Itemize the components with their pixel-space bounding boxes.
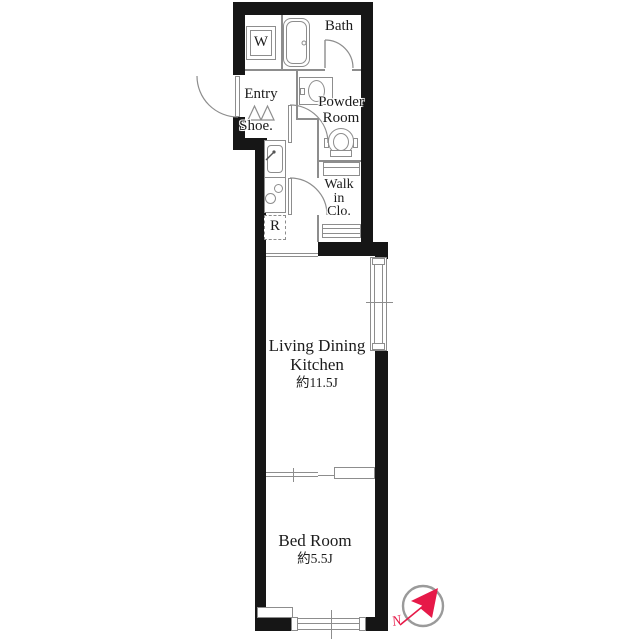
wic-shelf-bottom	[322, 224, 361, 238]
wic-label-line3: Clo.	[309, 205, 369, 219]
wall-wic-left-b	[317, 215, 319, 242]
compass-needle-upper	[411, 588, 438, 606]
refrigerator-label: R	[264, 219, 286, 235]
wall-powder-left	[296, 70, 298, 120]
toilet-bowl-inner	[333, 133, 349, 151]
toilet-tab-left	[324, 138, 329, 148]
ldk-window-cap-top	[372, 258, 385, 265]
entry-label: Entry	[231, 87, 291, 103]
wall-under-bath	[245, 69, 325, 71]
bedroom-size-label: 約5.5J	[245, 550, 385, 567]
powder-room-label-line1: Powder	[311, 94, 371, 110]
bedroom-window-pane	[294, 623, 363, 624]
walk-in-closet-label: Walk in Clo.	[309, 178, 369, 219]
partition-tick	[293, 468, 294, 482]
wic-label-line2: in	[309, 192, 369, 206]
powder-room-label: Powder Room	[311, 94, 371, 126]
kitchen-ldk-boundary-line	[266, 253, 318, 257]
bedroom-label-name: Bed Room	[245, 531, 385, 550]
toilet-tab-right	[353, 138, 358, 148]
wall-upper-left-a	[233, 15, 245, 75]
bedroom-window	[293, 618, 364, 630]
bath-door-arc	[325, 40, 353, 68]
washing-machine-label: W	[246, 35, 276, 51]
wall-under-bath-right	[352, 69, 361, 71]
powder-sink-tap	[300, 88, 305, 95]
ldk-label-line1: Living Dining	[247, 336, 387, 355]
bathtub-inner	[286, 21, 307, 64]
compass-needle-lower	[420, 588, 438, 618]
wic-door-leaf	[288, 178, 292, 215]
partition-connector	[318, 475, 335, 476]
powder-room-label-line2: Room	[311, 110, 371, 126]
compass-north-label: N	[387, 613, 406, 631]
shoe-label: Shoe.	[226, 119, 286, 135]
partition-track	[266, 472, 318, 477]
floor-plan: W R	[0, 0, 640, 639]
bedroom-ledge	[257, 607, 293, 618]
stove-burner-1	[265, 193, 276, 204]
wall-top	[233, 2, 373, 15]
bedroom-window-tick	[331, 610, 332, 639]
partition-panel	[334, 467, 375, 479]
wic-shelf-bottom-rod2	[323, 233, 360, 234]
wall-bottom-right	[364, 617, 388, 631]
ldk-size-label: 約11.5J	[247, 374, 387, 391]
wic-label-line1: Walk	[309, 178, 369, 192]
bath-label: Bath	[309, 19, 369, 35]
bedroom-label: Bed Room 約5.5J	[245, 531, 385, 567]
ldk-window-mullion	[366, 302, 393, 303]
wic-shelf-top-rod	[324, 167, 359, 168]
wall-bottom-left	[255, 617, 293, 631]
wic-shelf-top	[323, 162, 360, 176]
wall-wic-left-a	[317, 162, 319, 178]
wall-lower-right-b	[375, 351, 388, 631]
bedroom-window-cap-left	[291, 617, 298, 631]
kitchen-sink	[267, 145, 283, 173]
bedroom-window-cap-right	[359, 617, 366, 631]
ldk-label-line2: Kitchen	[247, 355, 387, 374]
powder-door-leaf	[288, 105, 292, 143]
wic-shelf-bottom-rod1	[323, 228, 360, 229]
compass-circle	[403, 586, 443, 626]
ldk-label: Living Dining Kitchen 約11.5J	[247, 336, 387, 391]
toilet-base	[330, 150, 352, 157]
stove-burner-2	[274, 184, 283, 193]
